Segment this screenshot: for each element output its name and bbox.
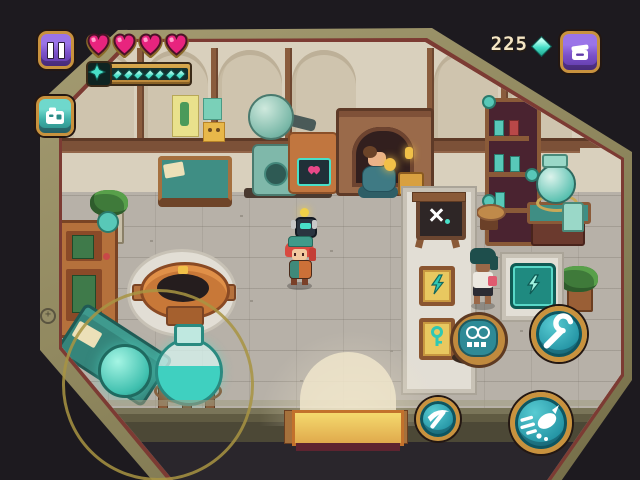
npc-lantern (384, 158, 396, 171)
bag-icon (569, 42, 591, 62)
heart-icon (138, 31, 163, 58)
heart-icon (86, 31, 111, 58)
door-threshold-shadow (296, 443, 400, 451)
jar (562, 202, 584, 232)
fireplace-lamp (405, 147, 413, 159)
npc-held-item (488, 276, 497, 286)
camera-icon (44, 106, 66, 126)
floor-speck (250, 300, 253, 302)
player-eye (294, 253, 296, 256)
cabinet-light (103, 253, 110, 260)
round-machine (450, 310, 502, 366)
gem-icon (531, 36, 552, 57)
energy-pip (122, 68, 133, 79)
teal-pad (510, 263, 556, 309)
hearts (86, 31, 189, 58)
lightning-icon (429, 274, 445, 296)
poster-teal (203, 98, 222, 120)
machine-face (458, 319, 498, 357)
basin-nugget (178, 266, 188, 274)
energy-pip (154, 68, 165, 79)
shelf (489, 172, 529, 177)
stool-top (476, 204, 506, 221)
bottle (510, 156, 520, 172)
dash-button[interactable] (510, 392, 572, 454)
lightning-icon (525, 274, 541, 296)
key-square (467, 342, 472, 347)
energy-pip (144, 68, 155, 79)
cabinet-screen (72, 235, 94, 259)
floor-speck (240, 215, 243, 217)
poster-figure (180, 102, 189, 126)
poster-orange (203, 122, 225, 142)
gadget-button[interactable] (416, 397, 460, 441)
player-hat (288, 236, 313, 247)
energy-pip (175, 68, 186, 79)
floor-speck (330, 250, 333, 252)
pause-button[interactable] (38, 31, 74, 69)
shelf (489, 136, 529, 141)
drone-visor (300, 223, 311, 229)
machine-body (288, 132, 338, 194)
player-body (289, 260, 312, 279)
frame-screw: + (40, 308, 56, 324)
goggle-icon (477, 326, 490, 339)
currency-count: 225 (462, 33, 528, 55)
joystick-ring[interactable] (62, 289, 254, 480)
floor-speck (150, 240, 153, 242)
shopkeeper-npc (466, 248, 500, 310)
poster-eye (216, 128, 220, 132)
energy-cap (86, 61, 112, 87)
seated-npc (356, 146, 400, 200)
bottle (509, 120, 519, 136)
sign-top-bar (412, 192, 466, 202)
player-eye (302, 253, 304, 256)
pause-icon (47, 42, 54, 59)
drone-fin (291, 220, 296, 229)
npc-hair-bun (363, 146, 377, 158)
bottle (494, 154, 504, 172)
plant-right (558, 266, 598, 310)
tank-window (264, 162, 288, 186)
plant-bush (558, 266, 598, 292)
energy-pip (165, 68, 176, 79)
sign-dot (445, 219, 450, 224)
lightning-tile (419, 266, 455, 306)
crafting-sign (414, 196, 462, 248)
key-square (481, 342, 486, 347)
player-character (282, 234, 316, 290)
heart-screen (297, 158, 331, 186)
poster-yellow (172, 95, 199, 137)
bottle (494, 120, 504, 136)
orb-glass (536, 164, 576, 204)
game-screen: + (0, 0, 640, 480)
drone-fin (312, 220, 317, 229)
pause-icon (58, 42, 65, 59)
glass-dome (248, 94, 294, 140)
npc-hair-tail (490, 256, 498, 270)
energy-bar (88, 62, 192, 86)
pickaxe-icon (423, 404, 453, 434)
energy-pip (133, 68, 144, 79)
spark-star-icon (88, 63, 106, 81)
heart-icon (112, 31, 137, 58)
sign-board (416, 198, 466, 240)
glass-orb (534, 162, 574, 206)
bag-button[interactable] (560, 31, 600, 73)
cabinet-panel (66, 231, 102, 261)
camera-button[interactable] (36, 96, 74, 136)
screen-heart-icon (312, 165, 322, 175)
energy-pips (110, 68, 188, 80)
orb-neck (542, 154, 568, 168)
cabinet-pipe-cap (97, 211, 119, 233)
stool (476, 204, 502, 234)
wrench-icon (536, 309, 582, 359)
drone-bulb (300, 208, 309, 217)
dash-icon (515, 397, 567, 449)
player-ponytail (309, 248, 316, 261)
door-mat (292, 410, 404, 446)
poster-eye (208, 128, 212, 132)
alchemy-machine (242, 92, 334, 196)
desk-papers (163, 161, 185, 178)
desk (158, 156, 232, 202)
player-face (292, 249, 307, 260)
heart-icon (164, 31, 189, 58)
energy-pip (112, 68, 123, 79)
wrench-button[interactable] (531, 306, 587, 362)
key-square (474, 342, 479, 347)
floor-speck (520, 330, 523, 332)
corner-knob (482, 95, 496, 109)
